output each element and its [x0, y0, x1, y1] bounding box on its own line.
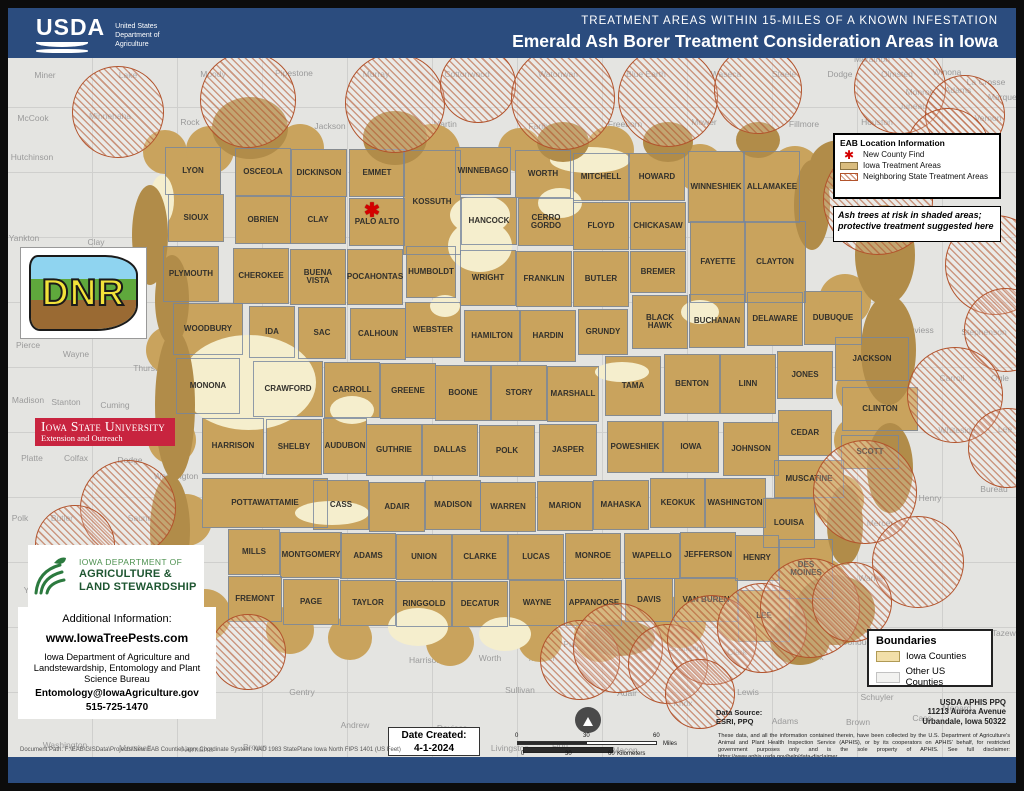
- eab-legend: EAB Location Information ✱ New County Fi…: [833, 133, 1001, 199]
- idals-leaf-icon: [54, 558, 66, 564]
- info-website-link[interactable]: www.IowaTreePests.com: [22, 631, 212, 645]
- legend-label: Neighboring State Treatment Areas: [863, 172, 988, 181]
- aphis-address: USDA APHIS PPQ 11213 Aurora Avenue Urban…: [922, 698, 1006, 726]
- north-arrow-icon: [575, 707, 601, 733]
- additional-info-box: Additional Information: www.IowaTreePest…: [18, 607, 216, 719]
- new-county-find-icon: ✱: [364, 200, 380, 221]
- document-path: Document Path: F:\EAB\GISData\Projects\N…: [20, 747, 401, 753]
- isu-logo: Iowa State University Extension and Outr…: [35, 418, 175, 446]
- new-county-find-legend-icon: ✱: [840, 151, 858, 159]
- header-bar: USDA United States Department of Agricul…: [8, 8, 1016, 58]
- usda-dept-text: United States Department of Agriculture: [115, 16, 159, 49]
- info-phone: 515-725-1470: [22, 702, 212, 713]
- usda-field-icon-2: [36, 49, 88, 53]
- legend-label: New County Find: [863, 150, 924, 159]
- scale-bar: 0 30 60 Miles 0 30 60 Kilometers: [515, 733, 675, 755]
- info-org-text: Iowa Department of Agriculture and Lands…: [22, 652, 212, 685]
- usda-wordmark: USDA: [36, 16, 105, 39]
- dnr-iowa-shape-icon: DNR: [29, 255, 138, 331]
- new-county-find-marker: ✱: [364, 199, 380, 222]
- footer-bar: [8, 757, 1016, 783]
- idals-field-icon: [32, 555, 74, 597]
- iowa-counties-swatch-icon: [876, 651, 900, 662]
- info-email-link[interactable]: Entomology@IowaAgriculture.gov: [22, 688, 212, 699]
- data-source: Data Source: ESRI, PPQ: [716, 708, 762, 727]
- map-canvas: MinerLakeMoodyPipestoneMurrayCottonwoodW…: [8, 58, 1016, 757]
- miles-bar: [517, 741, 657, 745]
- ash-risk-note: Ash trees at risk in shaded areas; prote…: [833, 206, 1001, 242]
- dnr-logo: DNR: [20, 247, 147, 339]
- info-title: Additional Information:: [22, 613, 212, 625]
- iowa-treatment-swatch-icon: [840, 162, 858, 170]
- boundaries-legend: Boundaries Iowa Counties Other US Counti…: [867, 629, 993, 687]
- usda-field-icon: [36, 42, 88, 47]
- map-title: Emerald Ash Borer Treatment Consideratio…: [512, 31, 998, 52]
- neighbor-treatment-swatch-icon: [840, 173, 858, 181]
- other-us-counties-swatch-icon: [876, 672, 900, 683]
- usda-logo: USDA United States Department of Agricul…: [36, 16, 160, 53]
- idals-logo: IOWA DEPARTMENT OF AGRICULTURE & LAND ST…: [28, 545, 204, 607]
- date-created-box: Date Created: 4-1-2024: [388, 727, 480, 756]
- legend-label: Iowa Counties: [906, 651, 966, 662]
- legend-label: Iowa Treatment Areas: [863, 161, 941, 170]
- legend-label: Other US Counties: [906, 666, 984, 688]
- disclaimer-text: These data, and all the information cont…: [718, 733, 1010, 757]
- map-subtitle: TREATMENT AREAS WITHIN 15-MILES OF A KNO…: [512, 15, 998, 27]
